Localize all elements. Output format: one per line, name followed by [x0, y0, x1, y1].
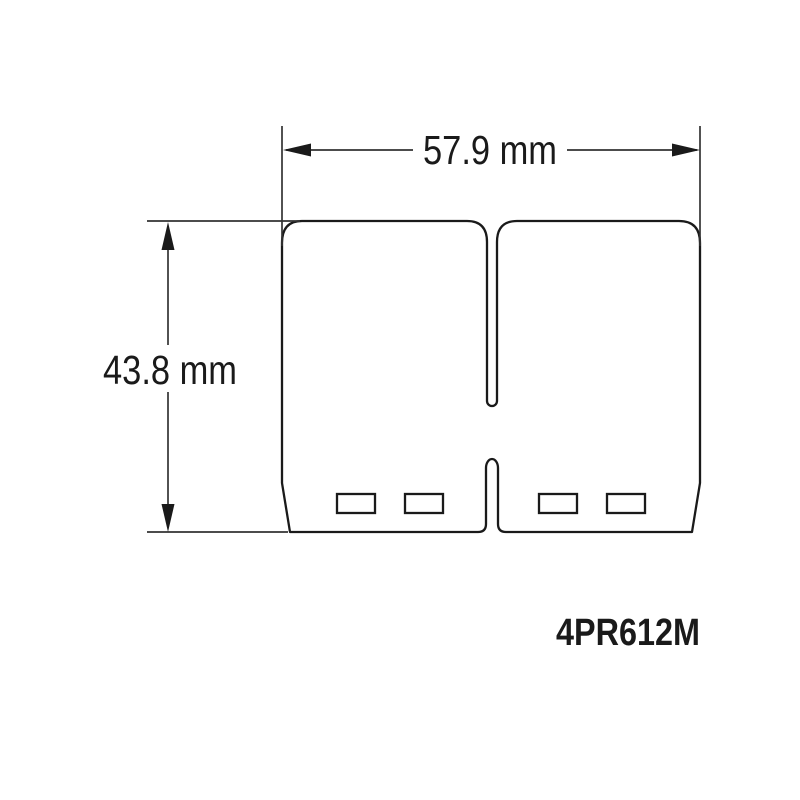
width-arrow-left-icon: [283, 144, 311, 157]
height-dimension: 43.8 mm: [103, 221, 300, 532]
mounting-hole-2: [405, 494, 443, 513]
technical-drawing: 57.9 mm 43.8 mm 4PR612M: [0, 0, 800, 800]
height-arrow-down-icon: [162, 504, 175, 532]
reed-petal-outline: [282, 221, 700, 532]
drawing-canvas: 57.9 mm 43.8 mm 4PR612M: [0, 0, 800, 800]
mounting-hole-4: [607, 494, 645, 513]
mounting-hole-1: [337, 494, 375, 513]
width-dimension: 57.9 mm: [282, 126, 700, 246]
height-dimension-label: 43.8 mm: [103, 347, 237, 393]
height-arrow-up-icon: [162, 222, 175, 250]
width-arrow-right-icon: [672, 144, 700, 157]
mounting-hole-3: [539, 494, 577, 513]
width-dimension-label: 57.9 mm: [423, 127, 557, 173]
part-number-label: 4PR612M: [556, 612, 700, 654]
